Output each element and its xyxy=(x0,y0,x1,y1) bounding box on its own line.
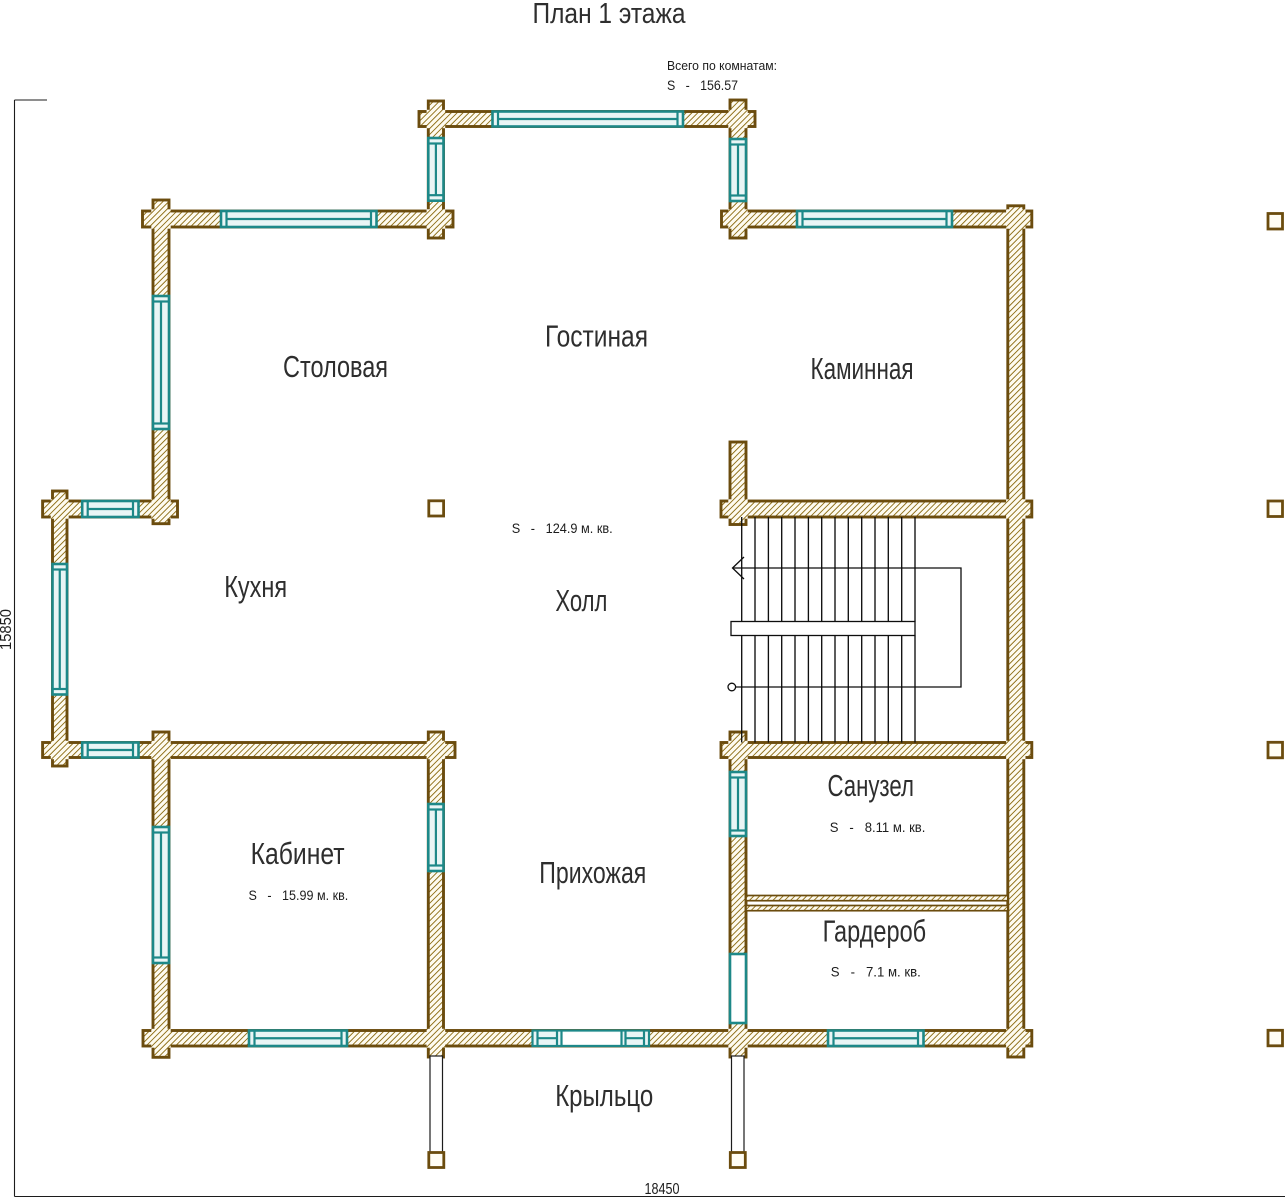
svg-text:18450: 18450 xyxy=(645,1181,680,1198)
svg-text:Санузел: Санузел xyxy=(827,769,914,803)
svg-text:Всего по комнатам:: Всего по комнатам: xyxy=(667,58,777,73)
svg-text:S - 156.57: S - 156.57 xyxy=(667,78,738,93)
svg-text:S - 7.1 м. кв.: S - 7.1 м. кв. xyxy=(831,965,921,980)
svg-text:Столовая: Столовая xyxy=(283,350,388,384)
svg-text:15850: 15850 xyxy=(0,609,15,650)
svg-text:План 1 этажа: План 1 этажа xyxy=(533,0,687,30)
svg-text:Кухня: Кухня xyxy=(224,570,287,604)
svg-text:Гостиная: Гостиная xyxy=(545,320,648,354)
svg-text:Крыльцо: Крыльцо xyxy=(555,1079,653,1113)
svg-text:S - 15.99 м. кв.: S - 15.99 м. кв. xyxy=(249,888,349,903)
svg-text:Холл: Холл xyxy=(555,584,607,618)
svg-text:Кабинет: Кабинет xyxy=(251,837,345,871)
svg-text:Каминная: Каминная xyxy=(811,352,914,386)
svg-text:Прихожая: Прихожая xyxy=(539,856,646,890)
svg-text:S - 124.9 м. кв.: S - 124.9 м. кв. xyxy=(512,521,613,536)
svg-text:S - 8.11 м. кв.: S - 8.11 м. кв. xyxy=(830,820,926,835)
svg-text:Гардероб: Гардероб xyxy=(823,915,927,949)
